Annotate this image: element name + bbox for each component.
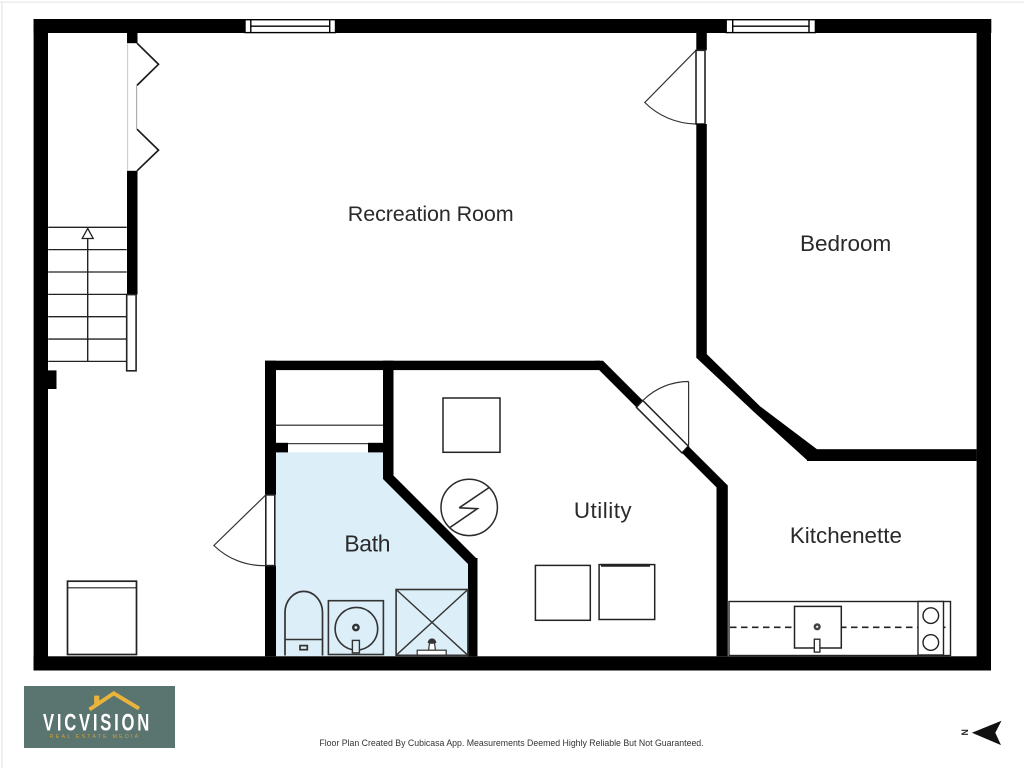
svg-text:VICVISION: VICVISION — [43, 710, 152, 737]
svg-text:Floor Plan Created By Cubicasa: Floor Plan Created By Cubicasa App. Meas… — [319, 738, 703, 748]
svg-text:REAL ESTATE MEDIA: REAL ESTATE MEDIA — [50, 734, 141, 740]
svg-text:Bedroom: Bedroom — [800, 231, 891, 256]
svg-text:Recreation Room: Recreation Room — [348, 202, 514, 226]
svg-text:Kitchenette: Kitchenette — [790, 523, 902, 548]
svg-text:Bath: Bath — [344, 531, 390, 557]
svg-text:Utility: Utility — [574, 498, 633, 523]
svg-text:N: N — [960, 729, 970, 735]
